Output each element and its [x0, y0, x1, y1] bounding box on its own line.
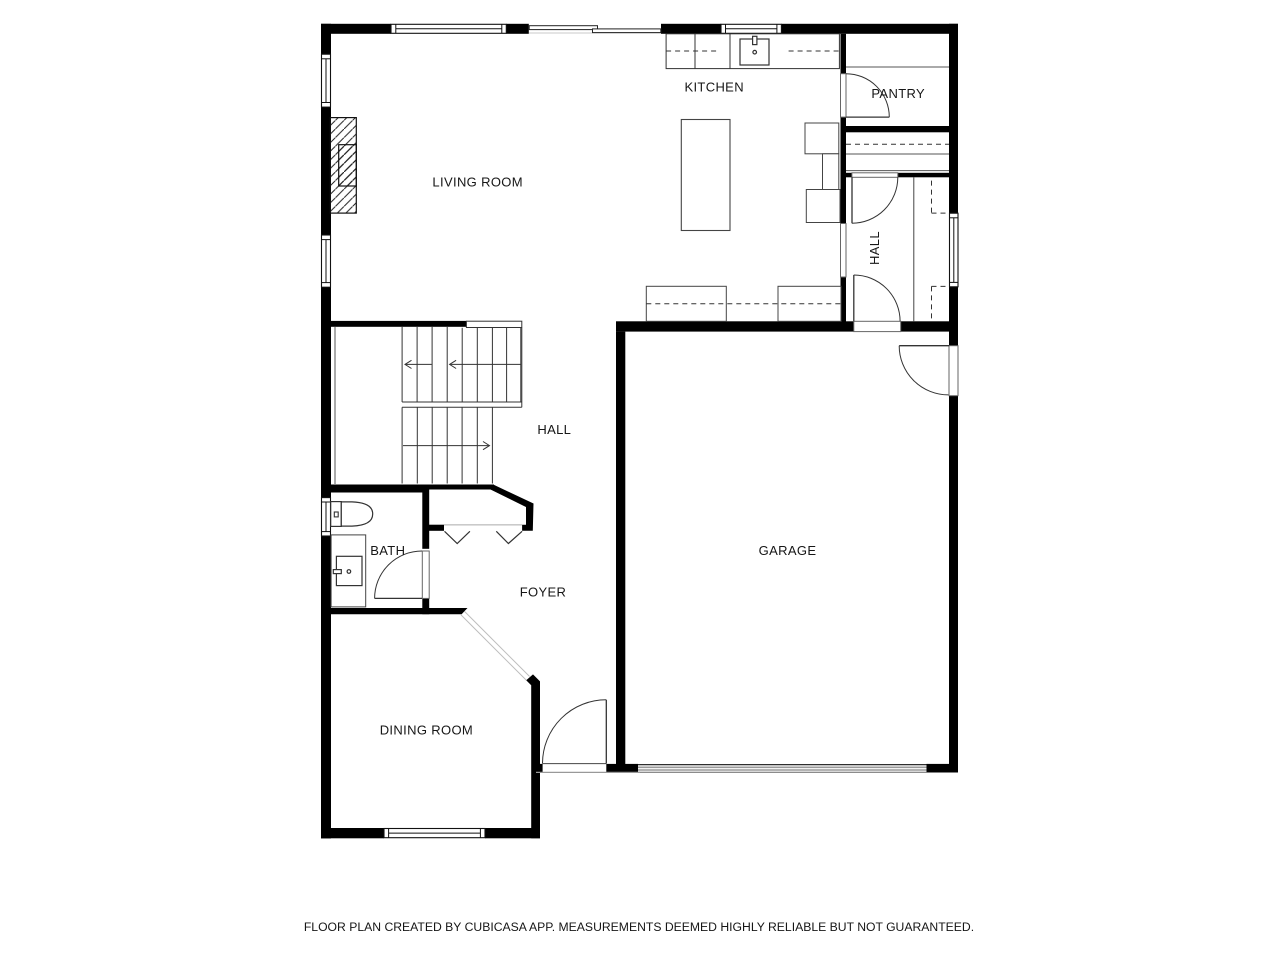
svg-text:HALL: HALL — [537, 422, 571, 437]
svg-text:BATH: BATH — [370, 543, 405, 558]
svg-text:FOYER: FOYER — [520, 584, 567, 599]
svg-text:GARAGE: GARAGE — [759, 543, 817, 558]
svg-text:PANTRY: PANTRY — [871, 86, 925, 101]
svg-text:LIVING ROOM: LIVING ROOM — [432, 175, 523, 190]
svg-text:DINING ROOM: DINING ROOM — [380, 723, 473, 738]
svg-text:HALL: HALL — [867, 231, 882, 265]
svg-text:FLOOR PLAN CREATED BY CUBICASA: FLOOR PLAN CREATED BY CUBICASA APP. MEAS… — [304, 920, 974, 934]
svg-text:KITCHEN: KITCHEN — [684, 80, 744, 95]
